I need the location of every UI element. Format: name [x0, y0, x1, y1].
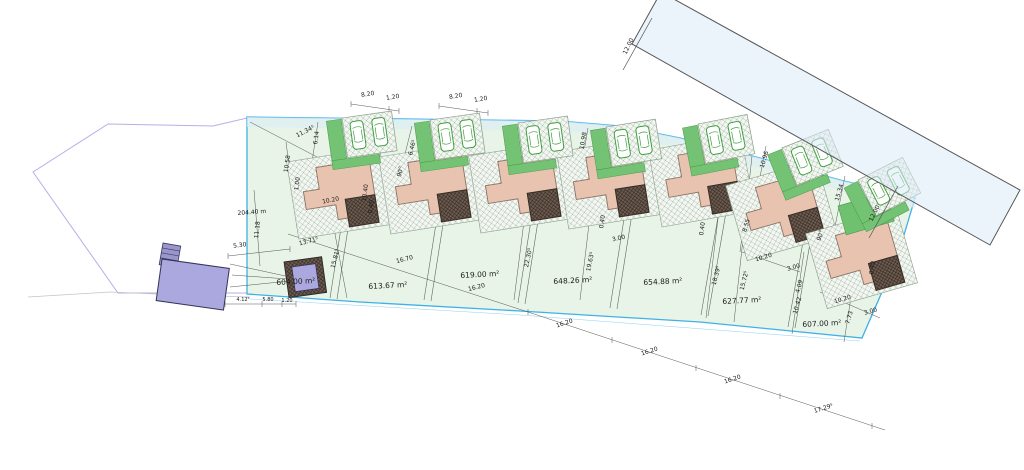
dimension-label: 1.20 [474, 95, 488, 104]
dimension-label: 16.20 [555, 318, 574, 330]
dimension-label: 16.20 [723, 374, 742, 386]
dimension-label: 5.80 [262, 297, 273, 303]
dimension-label: 1.20 [281, 298, 292, 304]
dimension-label: 17.29⁵ [813, 402, 834, 415]
site-plan-drawing: 604.00 m²613.67 m²619.00 m²648.26 m²654.… [0, 0, 1024, 470]
site-plan-canvas: 604.00 m²613.67 m²619.00 m²648.26 m²654.… [0, 0, 1024, 470]
dimension-label: 8.20 [449, 92, 463, 101]
dimension-label: 4.12⁵ [236, 297, 249, 303]
dimension-label: 16.20 [640, 346, 659, 358]
existing-building [156, 259, 229, 310]
dimension-label: 8.20 [361, 90, 375, 99]
dimension-label: 1.20 [386, 93, 400, 102]
dimension-label: 12.00 [622, 37, 636, 56]
